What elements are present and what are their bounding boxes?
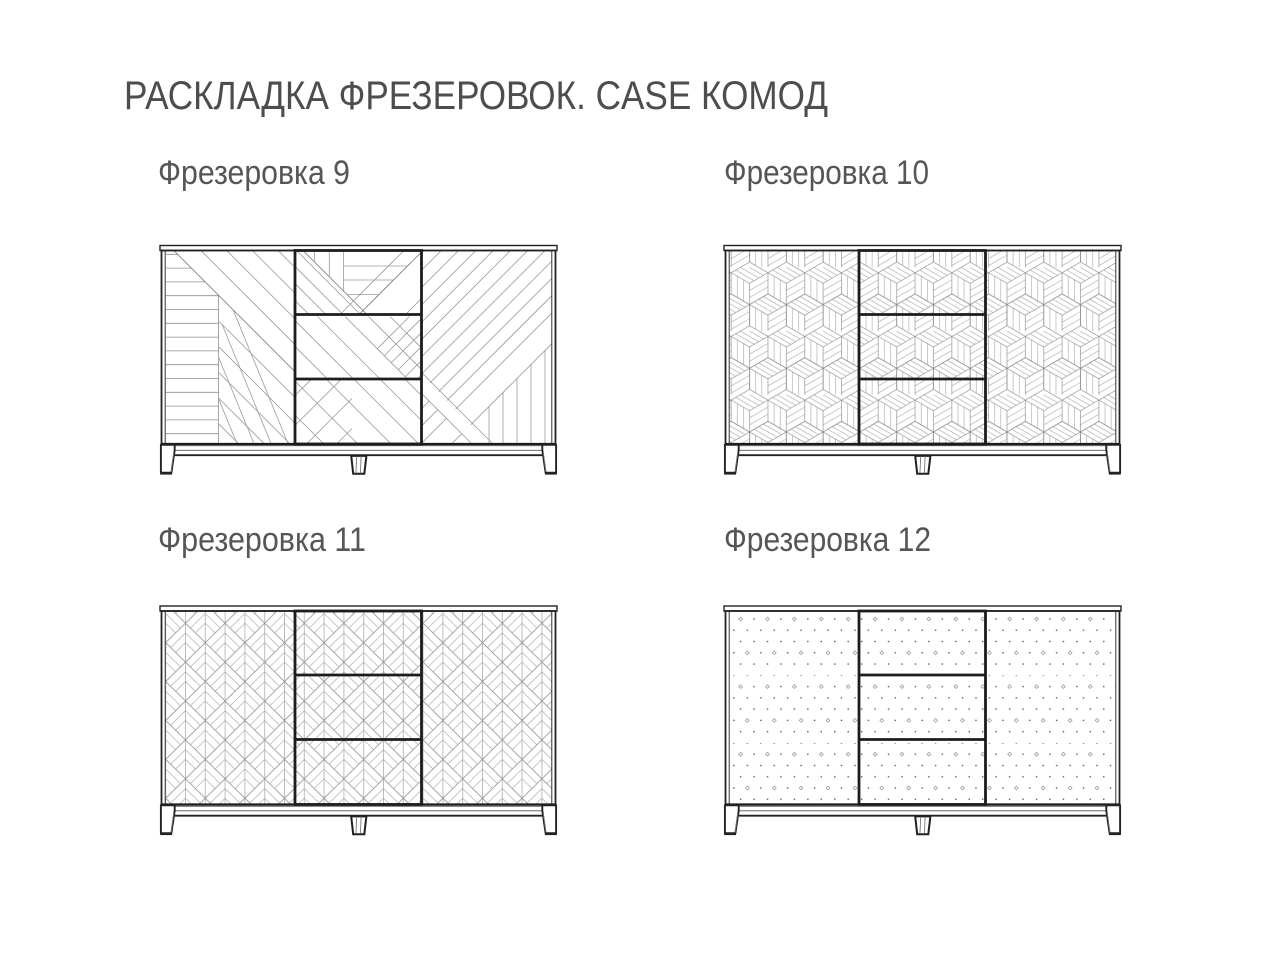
- svg-text:Фрезеровка 10: Фрезеровка 10: [724, 154, 929, 192]
- svg-text:Фрезеровка 9: Фрезеровка 9: [158, 154, 350, 192]
- svg-text:Фрезеровка 11: Фрезеровка 11: [158, 521, 366, 559]
- svg-text:Фрезеровка 12: Фрезеровка 12: [724, 521, 931, 559]
- svg-text:РАСКЛАДКА ФРЕЗЕРОВОК. CASE КОМ: РАСКЛАДКА ФРЕЗЕРОВОК. CASE КОМОД: [124, 74, 828, 118]
